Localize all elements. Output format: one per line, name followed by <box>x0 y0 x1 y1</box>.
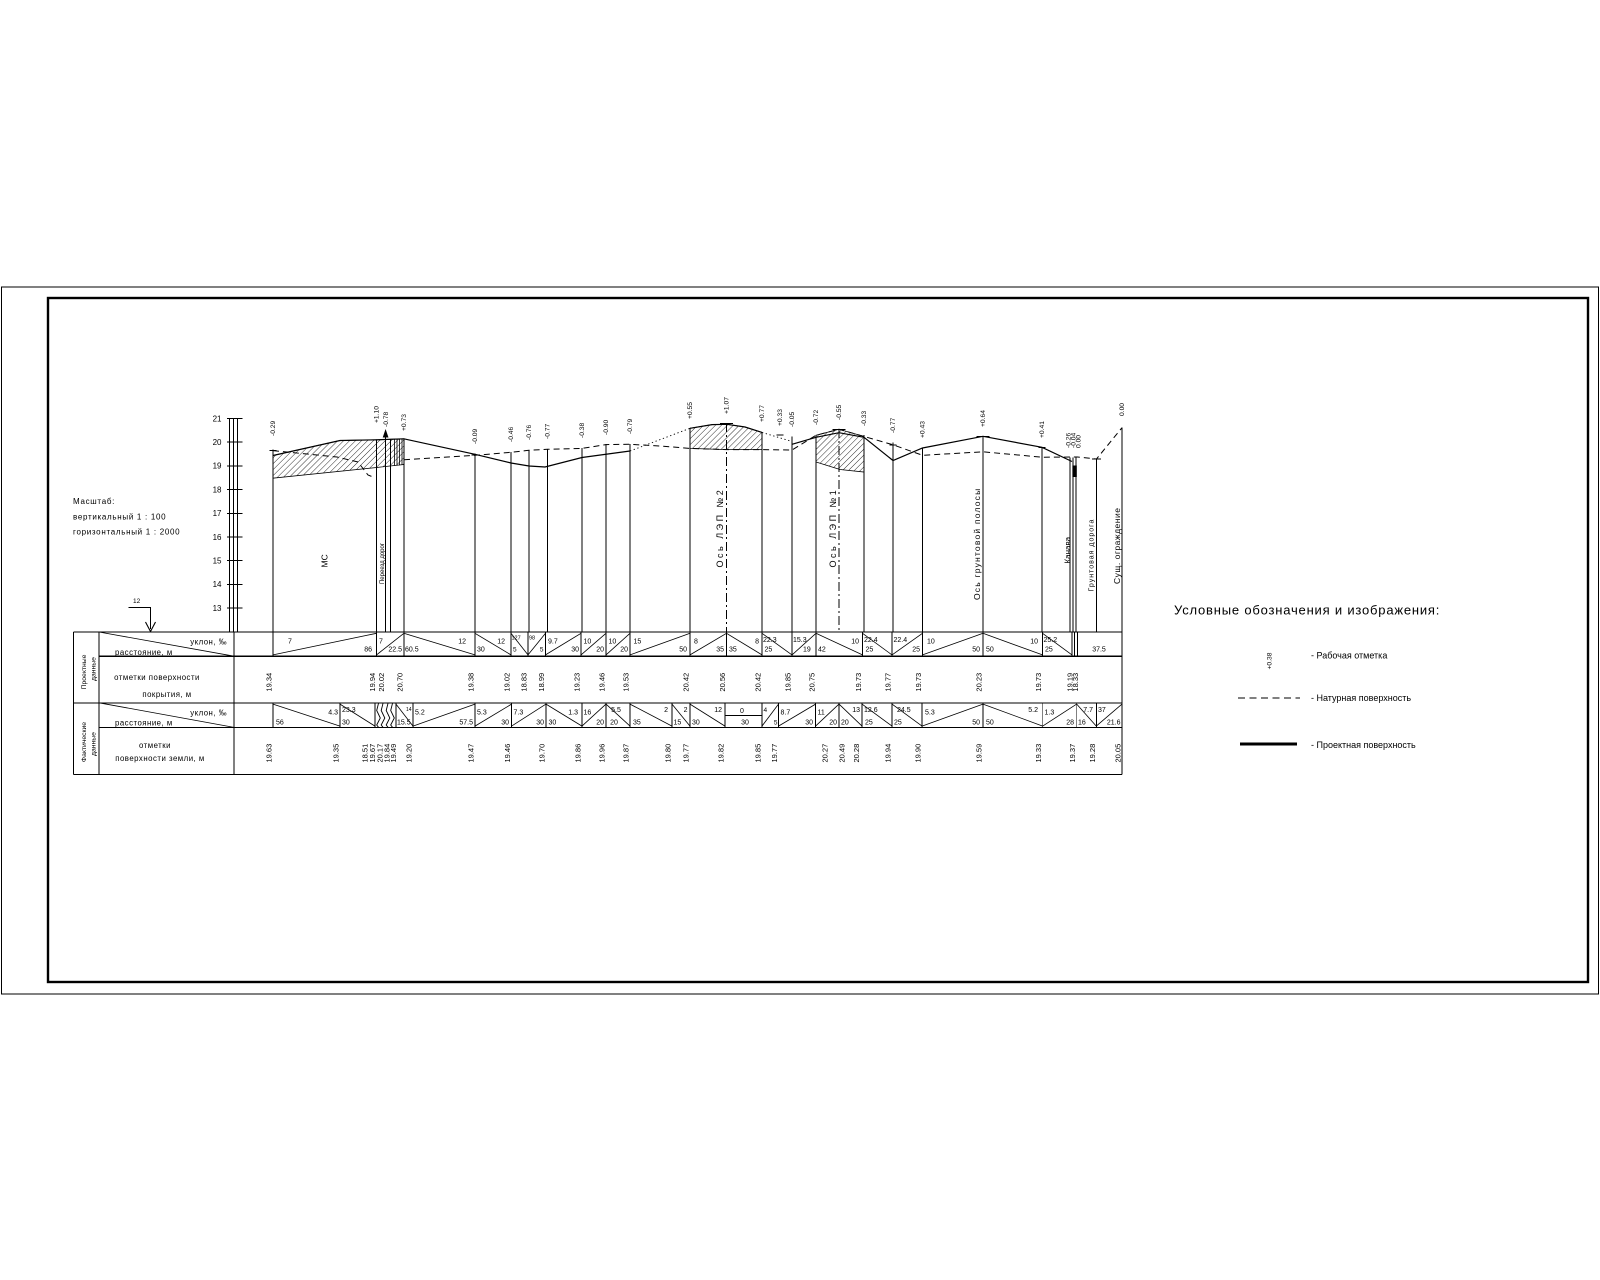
svg-text:28: 28 <box>1066 719 1074 726</box>
svg-text:+0.38: +0.38 <box>1267 652 1274 669</box>
svg-text:19.77: 19.77 <box>682 744 691 763</box>
svg-text:19.33: 19.33 <box>1034 744 1043 763</box>
svg-text:-0.78: -0.78 <box>383 411 390 427</box>
svg-text:19.73: 19.73 <box>1034 673 1043 692</box>
svg-text:20.75: 20.75 <box>808 673 817 692</box>
svg-text:5.5: 5.5 <box>611 707 621 714</box>
svg-text:37: 37 <box>1098 707 1106 714</box>
svg-text:-0.79: -0.79 <box>627 418 634 434</box>
svg-text:22.4: 22.4 <box>894 637 908 644</box>
svg-text:50: 50 <box>972 719 980 726</box>
svg-text:30: 30 <box>501 719 509 726</box>
svg-text:7.7: 7.7 <box>1083 707 1093 714</box>
svg-text:30: 30 <box>536 719 544 726</box>
svg-text:21: 21 <box>213 414 222 423</box>
svg-text:20.02: 20.02 <box>377 673 386 692</box>
svg-text:15: 15 <box>213 557 222 566</box>
svg-text:19.23: 19.23 <box>573 673 582 692</box>
svg-text:5: 5 <box>774 719 778 726</box>
svg-text:10: 10 <box>609 639 617 646</box>
svg-text:16: 16 <box>213 533 222 542</box>
svg-text:-0.05: -0.05 <box>789 411 796 427</box>
svg-text:4.3: 4.3 <box>328 710 338 717</box>
svg-text:19.38: 19.38 <box>467 673 476 692</box>
svg-text:37.5: 37.5 <box>1092 646 1106 653</box>
svg-text:60.5: 60.5 <box>405 646 419 653</box>
svg-text:22.4: 22.4 <box>864 637 878 644</box>
svg-text:МС: МС <box>320 554 330 567</box>
svg-text:35: 35 <box>716 646 724 653</box>
svg-text:Ось ЛЭП №1: Ось ЛЭП №1 <box>828 488 838 568</box>
svg-text:15.3: 15.3 <box>793 637 807 644</box>
svg-text:25: 25 <box>865 719 873 726</box>
svg-text:19.96: 19.96 <box>598 744 607 763</box>
svg-text:50: 50 <box>679 646 687 653</box>
svg-text:-0.72: -0.72 <box>813 409 820 425</box>
svg-text:-0.77: -0.77 <box>545 423 552 439</box>
svg-text:2: 2 <box>664 707 668 714</box>
svg-text:17: 17 <box>213 509 222 518</box>
svg-text:5.2: 5.2 <box>1028 707 1038 714</box>
svg-text:12: 12 <box>714 707 722 714</box>
svg-text:+0.64: +0.64 <box>980 410 987 427</box>
svg-text:19.80: 19.80 <box>664 744 673 763</box>
svg-text:19.73: 19.73 <box>854 673 863 692</box>
svg-text:20: 20 <box>829 719 837 726</box>
svg-text:57.5: 57.5 <box>459 719 473 726</box>
svg-text:20.28: 20.28 <box>852 744 861 763</box>
svg-text:Масштаб:: Масштаб: <box>73 497 115 506</box>
svg-text:19.59: 19.59 <box>975 744 984 763</box>
svg-text:уклон, ‰: уклон, ‰ <box>190 638 227 647</box>
svg-text:0: 0 <box>740 708 744 715</box>
svg-text:8: 8 <box>755 639 759 646</box>
svg-text:16: 16 <box>584 710 592 717</box>
svg-text:10: 10 <box>851 639 859 646</box>
svg-text:13: 13 <box>852 707 860 714</box>
svg-text:19.46: 19.46 <box>598 673 607 692</box>
svg-text:9.7: 9.7 <box>548 639 558 646</box>
svg-text:12: 12 <box>497 639 505 646</box>
svg-text:0.00: 0.00 <box>1119 403 1126 416</box>
svg-text:15: 15 <box>634 639 642 646</box>
svg-text:горизонтальный 1 : 2000: горизонтальный 1 : 2000 <box>73 528 180 537</box>
svg-text:-0.38: -0.38 <box>579 422 586 438</box>
svg-text:14: 14 <box>406 707 412 713</box>
svg-text:+0.55: +0.55 <box>687 402 694 419</box>
svg-text:19.87: 19.87 <box>622 744 631 763</box>
svg-text:+0.41: +0.41 <box>1039 421 1046 438</box>
svg-text:50: 50 <box>986 719 994 726</box>
svg-text:- Проектная поверхность: - Проектная поверхность <box>1311 740 1416 750</box>
svg-text:20.42: 20.42 <box>754 673 763 692</box>
svg-text:-0.55: -0.55 <box>836 404 843 420</box>
svg-text:+0.77: +0.77 <box>759 405 766 422</box>
svg-text:30: 30 <box>571 646 579 653</box>
svg-text:-0.09: -0.09 <box>472 428 479 444</box>
svg-text:19.77: 19.77 <box>770 744 779 763</box>
svg-text:20: 20 <box>620 646 628 653</box>
svg-text:21.6: 21.6 <box>1107 719 1121 726</box>
svg-text:- Натурная поверхность: - Натурная поверхность <box>1311 693 1411 703</box>
svg-text:расстояние, м: расстояние, м <box>115 648 173 657</box>
svg-text:20.70: 20.70 <box>395 673 404 692</box>
svg-text:+0.43: +0.43 <box>920 421 927 438</box>
svg-text:56: 56 <box>276 719 284 726</box>
svg-text:20: 20 <box>596 646 604 653</box>
svg-text:7: 7 <box>288 639 292 646</box>
svg-text:19.82: 19.82 <box>717 744 726 763</box>
svg-text:1.3: 1.3 <box>1045 710 1055 717</box>
svg-text:1.3: 1.3 <box>568 710 578 717</box>
svg-text:22.5: 22.5 <box>388 646 402 653</box>
svg-text:расстояние, м: расстояние, м <box>115 718 173 727</box>
svg-text:2: 2 <box>684 707 688 714</box>
svg-text:19.63: 19.63 <box>265 744 274 763</box>
svg-text:-0.77: -0.77 <box>890 417 897 433</box>
svg-text:-0.76: -0.76 <box>526 424 533 440</box>
svg-text:- Рабочая отметка: - Рабочая отметка <box>1311 651 1387 661</box>
svg-text:18.33: 18.33 <box>1071 673 1080 692</box>
svg-text:10: 10 <box>584 639 592 646</box>
svg-text:19.37: 19.37 <box>1068 744 1077 763</box>
svg-text:25: 25 <box>894 719 902 726</box>
svg-text:23.3: 23.3 <box>342 707 356 714</box>
svg-text:12.6: 12.6 <box>864 707 878 714</box>
svg-text:+1.07: +1.07 <box>724 397 731 414</box>
svg-text:25: 25 <box>912 646 920 653</box>
svg-text:5: 5 <box>513 646 517 653</box>
svg-text:Ось грунтовой полосы: Ось грунтовой полосы <box>972 488 982 600</box>
svg-text:42: 42 <box>818 646 826 653</box>
svg-text:18.99: 18.99 <box>537 673 546 692</box>
svg-text:8.7: 8.7 <box>781 710 791 717</box>
svg-text:12: 12 <box>458 639 466 646</box>
svg-text:35: 35 <box>729 646 737 653</box>
svg-text:4: 4 <box>764 707 768 714</box>
svg-text:19.85: 19.85 <box>784 673 793 692</box>
svg-text:-0.46: -0.46 <box>508 426 515 442</box>
svg-text:5.2: 5.2 <box>415 710 425 717</box>
svg-text:Проектные: Проектные <box>81 654 88 689</box>
svg-text:19.94: 19.94 <box>368 673 377 692</box>
svg-text:вертикальный 1 : 100: вертикальный 1 : 100 <box>73 513 166 522</box>
svg-text:19.77: 19.77 <box>884 673 893 692</box>
svg-text:19: 19 <box>803 646 811 653</box>
svg-text:Грунтовая дорога: Грунтовая дорога <box>1089 519 1096 592</box>
svg-text:Переезд дорог: Переезд дорог <box>380 542 386 584</box>
svg-text:30: 30 <box>549 719 557 726</box>
svg-text:8: 8 <box>694 639 698 646</box>
svg-text:поверхности земли, м: поверхности земли, м <box>115 754 205 763</box>
svg-text:+0.33: +0.33 <box>777 409 784 426</box>
svg-text:35: 35 <box>633 719 641 726</box>
svg-text:5.3: 5.3 <box>925 710 935 717</box>
svg-text:19.34: 19.34 <box>265 673 274 692</box>
svg-text:19.90: 19.90 <box>914 744 923 763</box>
svg-text:19: 19 <box>213 462 222 471</box>
svg-text:5: 5 <box>540 646 544 653</box>
svg-text:Условные обозначения и изображ: Условные обозначения и изображения: <box>1174 603 1440 618</box>
svg-text:30: 30 <box>692 719 700 726</box>
svg-text:19.20: 19.20 <box>405 744 414 763</box>
svg-text:7.3: 7.3 <box>514 710 524 717</box>
svg-text:-0.90: -0.90 <box>603 419 610 435</box>
svg-text:15.5: 15.5 <box>397 719 411 726</box>
svg-text:24.5: 24.5 <box>897 707 911 714</box>
svg-text:10: 10 <box>927 639 935 646</box>
svg-text:14: 14 <box>213 580 222 589</box>
svg-text:20.05: 20.05 <box>1114 744 1123 763</box>
svg-text:Ось ЛЭП №2: Ось ЛЭП №2 <box>715 488 725 568</box>
svg-text:30: 30 <box>477 646 485 653</box>
svg-text:25: 25 <box>765 646 773 653</box>
svg-text:уклон, ‰: уклон, ‰ <box>190 709 227 718</box>
svg-text:19.85: 19.85 <box>754 744 763 763</box>
svg-text:12: 12 <box>133 598 141 605</box>
svg-text:10: 10 <box>1030 639 1038 646</box>
svg-text:19.02: 19.02 <box>503 673 512 692</box>
svg-text:18.83: 18.83 <box>520 673 529 692</box>
svg-text:19.46: 19.46 <box>503 744 512 763</box>
svg-text:11: 11 <box>818 710 825 717</box>
svg-text:20.27: 20.27 <box>821 744 830 763</box>
svg-text:20.42: 20.42 <box>682 673 691 692</box>
svg-text:18: 18 <box>213 485 222 494</box>
svg-text:0.00: 0.00 <box>1076 435 1083 448</box>
svg-text:Фактические: Фактические <box>81 722 88 762</box>
svg-text:Канава: Канава <box>1064 536 1073 563</box>
svg-text:+0.73: +0.73 <box>401 414 408 431</box>
svg-text:13: 13 <box>213 604 222 613</box>
svg-text:25: 25 <box>866 646 874 653</box>
svg-text:15: 15 <box>674 719 682 726</box>
svg-text:19.94: 19.94 <box>884 744 893 763</box>
svg-text:20: 20 <box>841 719 849 726</box>
svg-text:19.73: 19.73 <box>914 673 923 692</box>
svg-text:отметки: отметки <box>139 741 171 750</box>
svg-text:25.2: 25.2 <box>1044 637 1058 644</box>
svg-text:данные: данные <box>91 732 98 756</box>
svg-text:5.3: 5.3 <box>477 710 487 717</box>
svg-text:19.47: 19.47 <box>467 744 476 763</box>
svg-text:20.49: 20.49 <box>838 744 847 763</box>
svg-text:50: 50 <box>986 646 994 653</box>
svg-text:19.86: 19.86 <box>574 744 583 763</box>
svg-text:127: 127 <box>512 636 521 642</box>
svg-text:30: 30 <box>741 719 749 726</box>
svg-text:19.49: 19.49 <box>389 744 398 763</box>
svg-text:19.53: 19.53 <box>622 673 631 692</box>
svg-text:Сущ. ограждение: Сущ. ограждение <box>1112 508 1122 584</box>
svg-text:20.56: 20.56 <box>718 673 727 692</box>
svg-text:98: 98 <box>529 636 535 642</box>
svg-text:86: 86 <box>364 646 372 653</box>
svg-text:16: 16 <box>1078 719 1086 726</box>
svg-text:19.28: 19.28 <box>1088 744 1097 763</box>
svg-text:50: 50 <box>972 646 980 653</box>
svg-text:30: 30 <box>342 719 350 726</box>
svg-text:покрытия, м: покрытия, м <box>142 690 191 699</box>
svg-text:отметки поверхности: отметки поверхности <box>114 673 200 682</box>
svg-text:30: 30 <box>805 719 813 726</box>
svg-text:-0.29: -0.29 <box>270 420 277 436</box>
svg-text:22.3: 22.3 <box>763 637 777 644</box>
svg-text:19.70: 19.70 <box>538 744 547 763</box>
svg-text:20.23: 20.23 <box>975 673 984 692</box>
svg-text:25: 25 <box>1045 646 1053 653</box>
svg-text:7: 7 <box>379 639 383 646</box>
svg-text:20: 20 <box>610 719 618 726</box>
svg-text:-0.33: -0.33 <box>861 410 868 426</box>
svg-text:20: 20 <box>213 438 222 447</box>
svg-text:данные: данные <box>91 657 98 681</box>
svg-text:19.35: 19.35 <box>332 744 341 763</box>
svg-text:20: 20 <box>596 719 604 726</box>
svg-text:+1.10: +1.10 <box>374 406 381 423</box>
